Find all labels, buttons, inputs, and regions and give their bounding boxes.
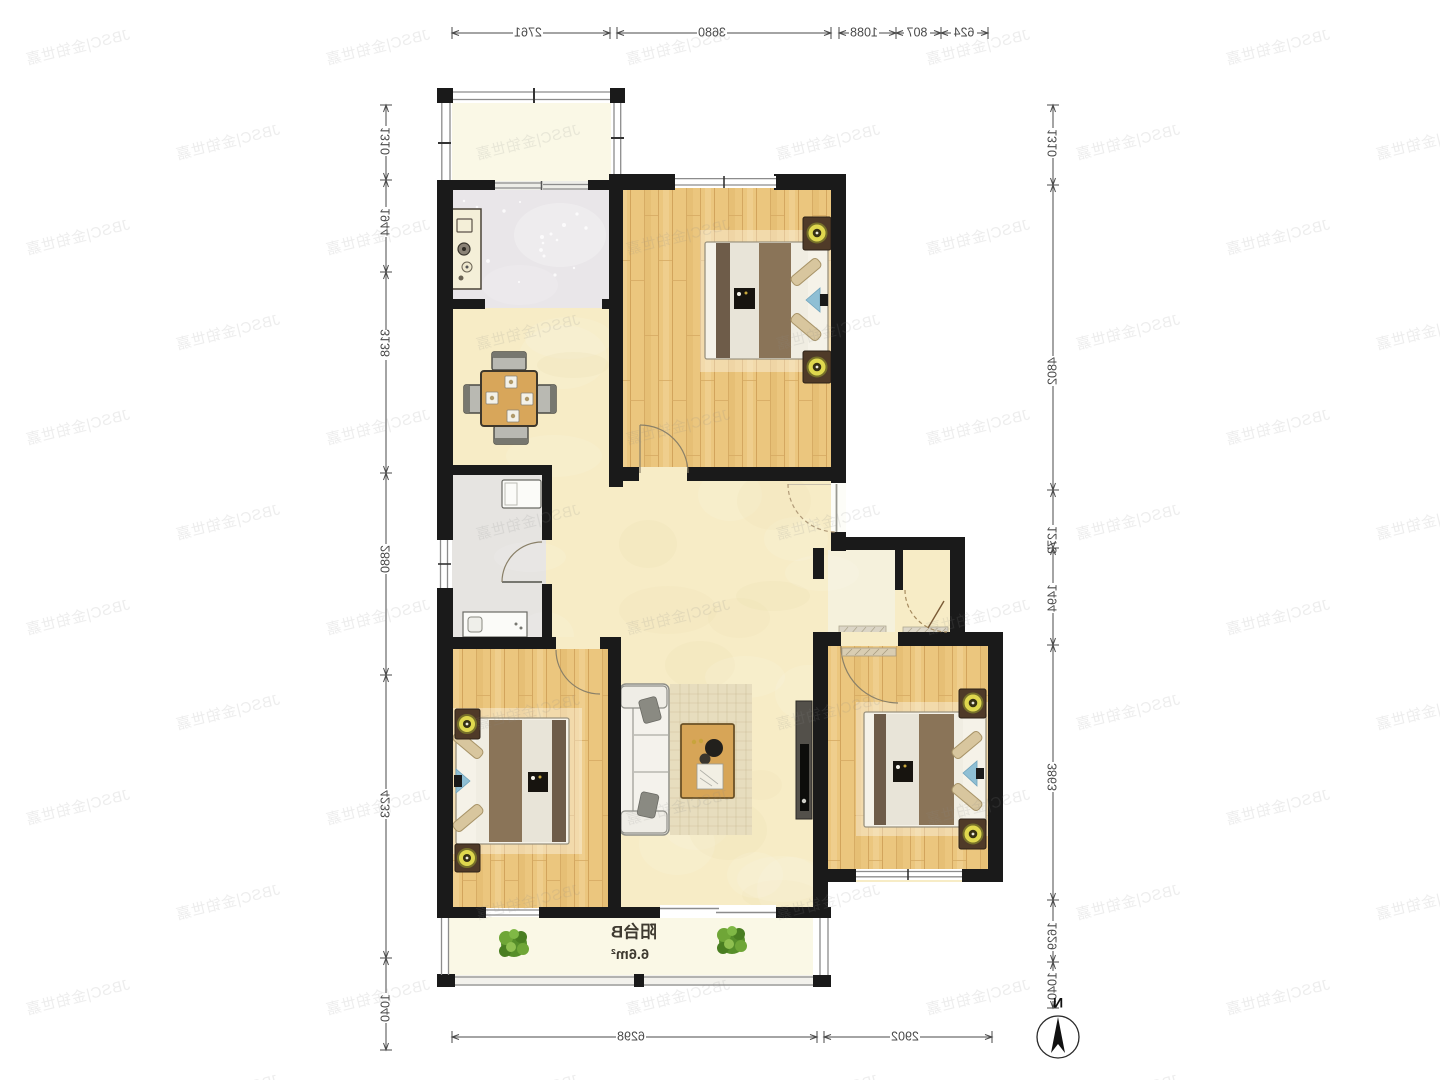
- svg-text:JBSC|金铂世嘉: JBSC|金铂世嘉: [1074, 1071, 1182, 1080]
- svg-text:JBSC|金铂世嘉: JBSC|金铂世嘉: [1374, 121, 1440, 163]
- svg-text:JBSC|金铂世嘉: JBSC|金铂世嘉: [774, 121, 882, 163]
- svg-text:JBSC|金铂世嘉: JBSC|金铂世嘉: [924, 216, 1032, 258]
- svg-text:1088: 1088: [850, 25, 878, 39]
- svg-text:JBSC|金铂世嘉: JBSC|金铂世嘉: [174, 311, 282, 353]
- svg-text:JBSC|金铂世嘉: JBSC|金铂世嘉: [1074, 691, 1182, 733]
- svg-text:1629: 1629: [1045, 922, 1059, 950]
- svg-text:JBSC|金铂世嘉: JBSC|金铂世嘉: [1224, 26, 1332, 68]
- svg-text:JBSC|金铂世嘉: JBSC|金铂世嘉: [174, 691, 282, 733]
- svg-text:JBSC|金铂世嘉: JBSC|金铂世嘉: [1374, 691, 1440, 733]
- svg-text:JBSC|金铂世嘉: JBSC|金铂世嘉: [324, 26, 432, 68]
- svg-text:JBSC|金铂世嘉: JBSC|金铂世嘉: [1074, 311, 1182, 353]
- svg-text:JBSC|金铂世嘉: JBSC|金铂世嘉: [1374, 1071, 1440, 1080]
- svg-text:1310: 1310: [378, 127, 392, 155]
- svg-text:624: 624: [954, 25, 975, 39]
- svg-text:JBSC|金铂世嘉: JBSC|金铂世嘉: [924, 406, 1032, 448]
- svg-text:JBSC|金铂世嘉: JBSC|金铂世嘉: [1074, 501, 1182, 543]
- svg-text:阳台B: 阳台B: [611, 921, 657, 941]
- svg-text:1310: 1310: [1045, 129, 1059, 157]
- svg-text:JBSC|金铂世嘉: JBSC|金铂世嘉: [1374, 501, 1440, 543]
- svg-text:JBSC|金铂世嘉: JBSC|金铂世嘉: [1224, 596, 1332, 638]
- svg-text:JBSC|金铂世嘉: JBSC|金铂世嘉: [324, 596, 432, 638]
- svg-text:JBSC|金铂世嘉: JBSC|金铂世嘉: [474, 1071, 582, 1080]
- svg-text:1494: 1494: [1045, 584, 1059, 612]
- svg-text:JBSC|金铂世嘉: JBSC|金铂世嘉: [1074, 881, 1182, 923]
- svg-text:N: N: [1053, 995, 1063, 1011]
- svg-text:JBSC|金铂世嘉: JBSC|金铂世嘉: [174, 881, 282, 923]
- svg-text:JBSC|金铂世嘉: JBSC|金铂世嘉: [174, 121, 282, 163]
- svg-text:JBSC|金铂世嘉: JBSC|金铂世嘉: [774, 1071, 882, 1080]
- svg-text:3138: 3138: [378, 329, 392, 357]
- svg-text:JBSC|金铂世嘉: JBSC|金铂世嘉: [1224, 976, 1332, 1018]
- svg-text:JBSC|金铂世嘉: JBSC|金铂世嘉: [24, 406, 132, 448]
- svg-text:2761: 2761: [514, 25, 542, 39]
- svg-text:3863: 3863: [1045, 763, 1059, 791]
- svg-text:JBSC|金铂世嘉: JBSC|金铂世嘉: [174, 501, 282, 543]
- svg-text:JBSC|金铂世嘉: JBSC|金铂世嘉: [1224, 406, 1332, 448]
- svg-text:JBSC|金铂世嘉: JBSC|金铂世嘉: [324, 406, 432, 448]
- svg-text:2880: 2880: [378, 545, 392, 573]
- svg-text:2902: 2902: [891, 1029, 919, 1043]
- svg-text:JBSC|金铂世嘉: JBSC|金铂世嘉: [24, 596, 132, 638]
- svg-text:JBSC|金铂世嘉: JBSC|金铂世嘉: [924, 976, 1032, 1018]
- svg-text:807: 807: [907, 25, 928, 39]
- svg-text:6298: 6298: [617, 1029, 645, 1043]
- svg-text:JBSC|金铂世嘉: JBSC|金铂世嘉: [24, 976, 132, 1018]
- svg-text:JBSC|金铂世嘉: JBSC|金铂世嘉: [1374, 311, 1440, 353]
- svg-text:4802: 4802: [1045, 357, 1059, 385]
- svg-text:JBSC|金铂世嘉: JBSC|金铂世嘉: [1374, 881, 1440, 923]
- svg-text:JBSC|金铂世嘉: JBSC|金铂世嘉: [24, 26, 132, 68]
- svg-text:6.6m²: 6.6m²: [611, 947, 649, 963]
- svg-text:1273: 1273: [1045, 526, 1059, 554]
- svg-text:JBSC|金铂世嘉: JBSC|金铂世嘉: [1224, 216, 1332, 258]
- svg-text:JBSC|金铂世嘉: JBSC|金铂世嘉: [1224, 786, 1332, 828]
- svg-text:JBSC|金铂世嘉: JBSC|金铂世嘉: [174, 1071, 282, 1080]
- svg-text:JBSC|金铂世嘉: JBSC|金铂世嘉: [24, 786, 132, 828]
- svg-text:JBSC|金铂世嘉: JBSC|金铂世嘉: [24, 216, 132, 258]
- svg-text:JBSC|金铂世嘉: JBSC|金铂世嘉: [1074, 121, 1182, 163]
